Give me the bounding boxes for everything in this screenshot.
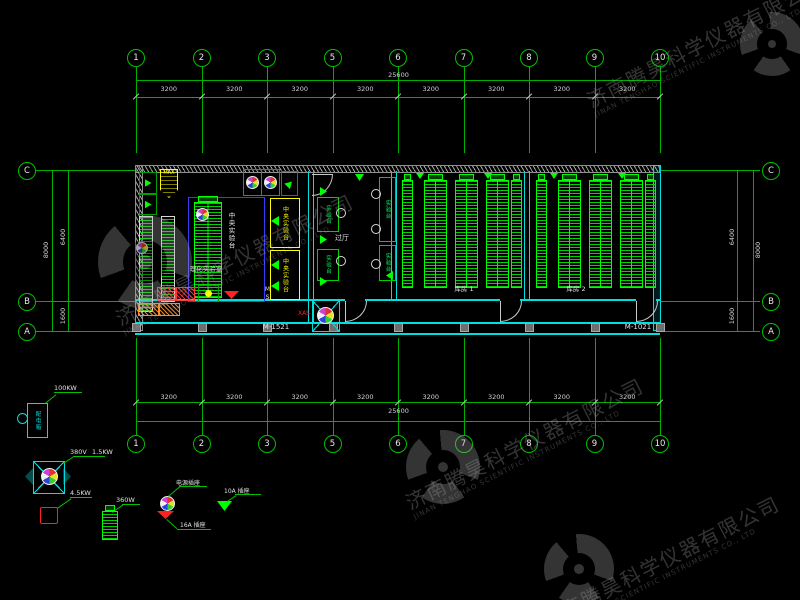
legend-socket-16a: 16A 插座 (180, 520, 206, 529)
room-label-store2: 库房 2 (556, 283, 596, 293)
axis-line-C-right (660, 170, 760, 171)
axis-bubble-C-right: C (762, 162, 780, 180)
axis-bubble: 3 (258, 435, 276, 453)
storage-rack (620, 180, 643, 288)
axis-letter: A (768, 327, 774, 337)
left-lower-dimension: 1600 (59, 296, 67, 336)
lamp-icon (416, 173, 424, 179)
axis-bubble-B-right: B (762, 293, 780, 311)
axis-bubble: 8 (520, 49, 538, 67)
watermark-company-en: JINAN TENGHAO SCIENTIFIC INSTRUMENTS CO.… (593, 0, 800, 119)
leader-line (177, 529, 211, 530)
ceiling-light (371, 224, 381, 234)
column-marker (591, 323, 600, 332)
axis-number: 10 (655, 439, 666, 449)
axis-number: 7 (461, 53, 466, 63)
axis-bubble-A: A (18, 323, 36, 341)
ceiling-light (371, 259, 381, 269)
dimension-text: 3200 (595, 393, 661, 401)
axis-number: 6 (395, 439, 400, 449)
legend-socket-10a: 10A 插座 (224, 486, 250, 495)
dimension-text: 3200 (136, 85, 202, 93)
fan-flare (25, 468, 33, 485)
cabinet-label: 实验台 (384, 200, 392, 220)
exterior-wall-top (135, 165, 660, 173)
axis-bubble: 9 (586, 435, 604, 453)
watermark-text: 济南腾昊科学仪器有限公司 JINAN TENGHAO SCIENTIFIC IN… (536, 488, 787, 600)
distribution-box-label: 配电箱 (34, 411, 42, 431)
fan-symbol (246, 176, 259, 189)
dimension-text: 3200 (464, 85, 530, 93)
watermark-text: 济南腾昊科学仪器有限公司 JINAN TENGHAO SCIENTIFIC IN… (581, 0, 800, 119)
max-flag-marker: MAX (160, 169, 178, 198)
leader-line (166, 519, 177, 529)
ceiling-light (336, 256, 346, 266)
axis-number: 2 (199, 439, 204, 449)
storage-rack (645, 180, 656, 288)
axis-number: 8 (526, 53, 531, 63)
axis-number: 10 (655, 53, 666, 63)
watermark-logo (740, 12, 800, 76)
partition-wall-3 (524, 171, 530, 301)
storage-rack (536, 180, 547, 288)
dimension-text: 3200 (529, 393, 595, 401)
side-bench-box: 中央实验台 (270, 250, 300, 300)
speaker-icon (320, 235, 327, 244)
fan-unit-box (243, 169, 262, 196)
dimension-text: 3200 (333, 85, 399, 93)
cabinet-label: 实验台 (324, 205, 332, 225)
fan-symbol (136, 242, 148, 254)
axis-line-A (36, 331, 135, 332)
cad-floorplan-drawing: 25600 32003200320032003200320032003200 1… (0, 0, 800, 600)
room-label-hall: 过厅 (332, 233, 352, 243)
left-dim-line-outer (52, 170, 53, 331)
watermark-company-en: JINAN TENGHAO SCIENTIFIC INSTRUMENTS CO.… (548, 512, 787, 600)
fan-symbol (264, 176, 277, 189)
right-lower-dimension: 1600 (728, 296, 736, 336)
axis-letter: B (768, 297, 774, 307)
axis-number: 1 (133, 53, 138, 63)
axis-bubble: 1 (127, 49, 145, 67)
arrow-icon (145, 179, 152, 187)
axis-letter: C (24, 166, 30, 176)
fan-symbol (317, 307, 334, 324)
axis-bubble: 3 (258, 49, 276, 67)
fan-tag: XAS (294, 310, 310, 317)
axis-bubble: 7 (455, 49, 473, 67)
leader-line (70, 497, 92, 498)
storage-rack (402, 180, 413, 288)
side-bench (139, 216, 153, 312)
dimension-text: 3200 (464, 393, 530, 401)
legend-fan-power: 1.5KW (92, 448, 113, 456)
leader-line (227, 495, 237, 502)
axis-line-B-right (660, 301, 760, 302)
axis-letter: C (768, 166, 774, 176)
axis-number: 5 (330, 439, 335, 449)
storage-rack (558, 180, 581, 288)
lamp-icon (550, 173, 558, 179)
axis-bubble-B: B (18, 293, 36, 311)
exhaust-outlet-box (281, 171, 298, 196)
edge-bench (176, 287, 195, 301)
corridor-cabinet (138, 303, 159, 316)
legend-fan-voltage: 380V (70, 448, 87, 456)
storage-rack (424, 180, 447, 288)
corridor-wall (520, 299, 636, 301)
leader-line (54, 392, 82, 393)
leader-line (122, 504, 140, 505)
leader-line (73, 456, 105, 457)
storage-rack (589, 180, 612, 288)
fan-flare (63, 468, 71, 485)
top-dim-line-total (136, 80, 661, 81)
edge-bench (157, 287, 176, 301)
axis-letter: B (24, 297, 30, 307)
cabinet: 实验台 (379, 177, 396, 242)
ceiling-light (336, 208, 346, 218)
door-tag-right: M-1021 (618, 323, 658, 331)
storage-rack (486, 180, 509, 288)
axis-number: 6 (395, 53, 400, 63)
door-tag-left: M-1521 (256, 323, 296, 331)
axis-line-B (36, 301, 135, 302)
axis-bubble: 6 (389, 435, 407, 453)
right-total-dimension: 8000 (754, 230, 762, 270)
leader-line (57, 498, 71, 509)
dimension-text: 3200 (202, 393, 268, 401)
axis-bubble: 5 (324, 49, 342, 67)
bench-symbol (102, 511, 118, 540)
left-total-dimension: 8000 (42, 230, 50, 270)
column-marker (525, 323, 534, 332)
ms-tag: MS (264, 286, 271, 302)
legend-socket-power: 4.5KW (70, 489, 91, 497)
dimension-text: 3200 (202, 85, 268, 93)
axis-number: 3 (264, 53, 269, 63)
axis-bubble: 2 (193, 435, 211, 453)
room-label-store1: 库房 1 (444, 283, 484, 293)
door-arc-store1 (500, 301, 522, 322)
column-marker (460, 323, 469, 332)
axis-number: 5 (330, 53, 335, 63)
exhaust-outlet-box (139, 172, 157, 194)
socket-10a-symbol (217, 501, 232, 511)
dimension-text: 3200 (267, 85, 333, 93)
indicator-dot (205, 290, 212, 297)
axis-bubble-C: C (18, 162, 36, 180)
dimension-text: 3200 (398, 393, 464, 401)
arrow-icon (145, 201, 152, 209)
axis-number: 9 (592, 439, 597, 449)
axis-bubble: 7 (455, 435, 473, 453)
axis-bubble: 8 (520, 435, 538, 453)
left-dim-line-inner (68, 170, 69, 331)
dimension-text: 3200 (595, 85, 661, 93)
axis-bubble: 2 (193, 49, 211, 67)
axis-number: 1 (133, 439, 138, 449)
dimension-text: 3200 (398, 85, 464, 93)
speaker-icon (355, 174, 364, 181)
fan-symbol (196, 208, 209, 221)
dimension-text: 3200 (267, 393, 333, 401)
arrow-icon (284, 178, 295, 189)
axis-line-A-right (660, 331, 760, 332)
legend-bench-power: 360W (116, 496, 135, 504)
top-dim-line-segments (136, 97, 661, 98)
power-socket-fan-symbol (160, 496, 175, 511)
legend-dist-power: 100KW (54, 384, 77, 392)
axis-letter: A (24, 327, 30, 337)
axis-number: 8 (526, 439, 531, 449)
right-dim-line-inner (737, 170, 738, 331)
top-total-dimension: 25600 (136, 71, 661, 79)
axis-number: 3 (264, 439, 269, 449)
storage-rack (455, 180, 478, 288)
axis-number: 2 (199, 53, 204, 63)
watermark-company-cn: 济南腾昊科学仪器有限公司 (536, 488, 784, 600)
left-upper-dimension: 6400 (59, 217, 67, 257)
dimension-text: 3200 (136, 393, 202, 401)
legend-power-socket: 电源插座 (176, 478, 200, 487)
axis-bubble: 1 (127, 435, 145, 453)
column-marker (132, 323, 141, 332)
socket-symbol-4-5kw (40, 507, 58, 524)
corridor-wall (365, 299, 500, 301)
column-marker (198, 323, 207, 332)
door-arc-corridor-1 (345, 301, 367, 322)
socket-16a-symbol (157, 511, 174, 519)
axis-bubble: 9 (586, 49, 604, 67)
room-label-lab: 理化实验室 (184, 263, 228, 273)
storage-rack (511, 180, 522, 288)
fan-unit-box (261, 169, 280, 196)
dimension-text: 3200 (333, 393, 399, 401)
leader-line (168, 486, 180, 496)
axis-bubble: 6 (389, 49, 407, 67)
column-marker (394, 323, 403, 332)
axis-bubble: 5 (324, 435, 342, 453)
distribution-box-symbol: 配电箱 (27, 403, 48, 438)
corridor-cabinet (159, 303, 180, 316)
axis-bubble-A-right: A (762, 323, 780, 341)
leader-line (45, 394, 57, 404)
dimension-text: 3200 (529, 85, 595, 93)
equipment-box (198, 285, 219, 302)
axis-line-C (36, 170, 135, 171)
axis-bubble: 10 (651, 49, 669, 67)
axis-number: 9 (592, 53, 597, 63)
cabinet-label: 实验台 (324, 255, 332, 275)
central-bench-label: 中央实验台 (226, 212, 236, 250)
axis-bubble: 10 (651, 435, 669, 453)
ceiling-light (371, 189, 381, 199)
watermark-logo (544, 534, 614, 600)
bottom-dim-line-total (136, 421, 661, 422)
meter-circle (17, 413, 28, 424)
right-upper-dimension: 6400 (728, 217, 736, 257)
bench-label: 中央实验台 (281, 258, 290, 293)
fan-symbol (41, 468, 58, 485)
bench-label: 中央实验台 (281, 206, 290, 241)
cabinet-label: 实验台 (384, 253, 392, 273)
cabinet: 实验台 (317, 249, 339, 281)
bottom-total-dimension: 25600 (136, 407, 661, 415)
exhaust-outlet-box (139, 194, 157, 215)
axis-number: 7 (461, 439, 466, 449)
